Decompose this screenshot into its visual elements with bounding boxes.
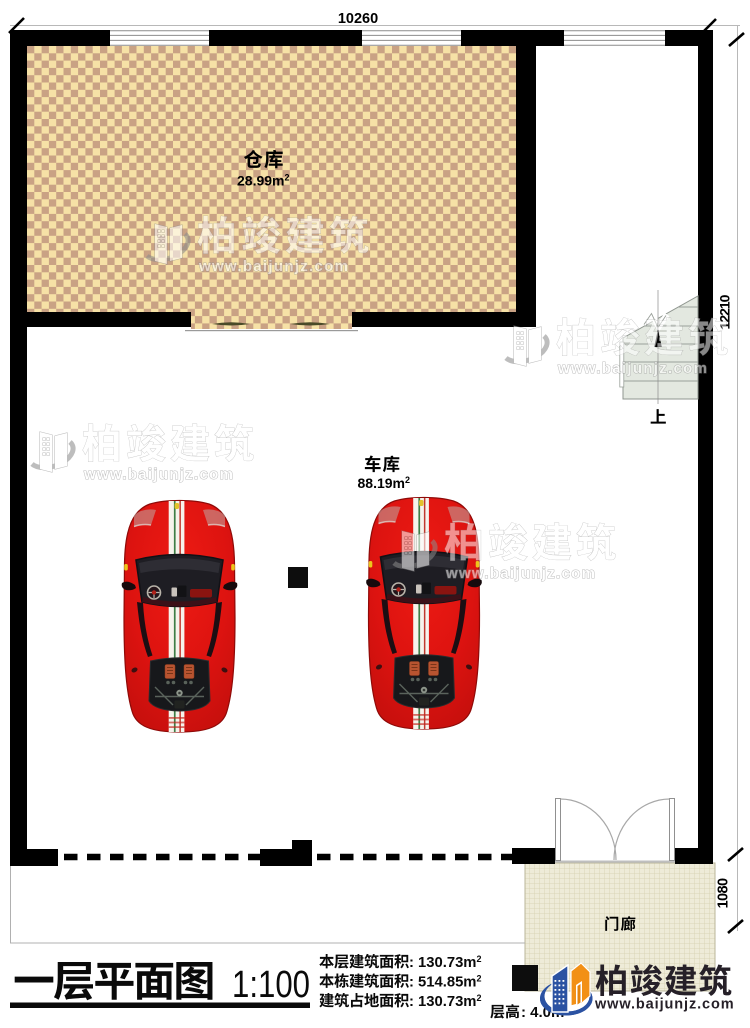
svg-text:www.baijunjz.com: www.baijunjz.com xyxy=(594,997,735,1013)
svg-text:28.99m2: 28.99m2 xyxy=(237,173,290,189)
svg-text:www.baijunjz.com: www.baijunjz.com xyxy=(83,466,234,483)
svg-text:: 514.85m2: : 514.85m2 xyxy=(409,974,481,991)
svg-text:10260: 10260 xyxy=(338,11,378,27)
svg-text:1:100: 1:100 xyxy=(232,964,310,1006)
svg-text:www.baijunjz.com: www.baijunjz.com xyxy=(557,360,708,377)
svg-text:88.19m2: 88.19m2 xyxy=(358,475,411,491)
svg-text:1080: 1080 xyxy=(716,878,732,908)
svg-text:: 130.73m2: : 130.73m2 xyxy=(409,954,481,971)
svg-text:www.baijunjz.com: www.baijunjz.com xyxy=(445,565,596,582)
svg-text:: 130.73m2: : 130.73m2 xyxy=(409,993,481,1010)
svg-text:www.baijunjz.com: www.baijunjz.com xyxy=(198,258,349,275)
